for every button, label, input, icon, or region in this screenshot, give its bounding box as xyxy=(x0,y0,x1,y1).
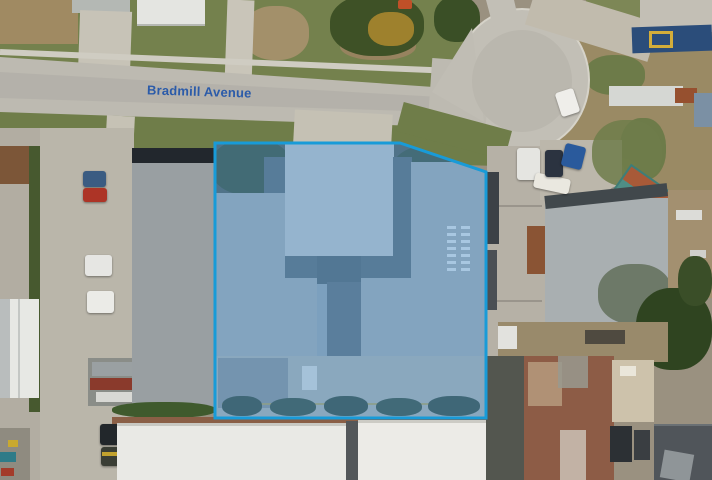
blue-structure xyxy=(694,93,712,127)
roof-central-strip xyxy=(327,282,361,360)
landscape-bush xyxy=(222,396,262,416)
roof-valley xyxy=(264,157,285,195)
driveway xyxy=(225,0,255,84)
tree-cluster xyxy=(678,256,712,306)
yellow-junk xyxy=(8,440,18,447)
crossover-driveway xyxy=(293,109,393,147)
hedge-row xyxy=(112,402,216,418)
white-speck xyxy=(676,210,702,220)
yellow-marking xyxy=(102,452,117,456)
white-car xyxy=(85,255,112,276)
landscape-bush xyxy=(428,396,480,416)
white-container xyxy=(302,366,317,390)
white-trailer xyxy=(498,326,517,349)
rusty-warehouse-light-band xyxy=(560,430,586,480)
subject-roof-lower xyxy=(283,278,317,358)
skylight-vents xyxy=(447,226,456,274)
steel-sheet-stack xyxy=(609,86,683,106)
roof-funnel xyxy=(317,256,361,284)
rusty-racks xyxy=(0,146,30,184)
steel-racks xyxy=(486,250,497,310)
yellow-frame-box xyxy=(649,31,673,48)
timber-stack xyxy=(527,226,545,274)
rusty-warehouse-tan-patch xyxy=(528,362,562,406)
white-roof-building xyxy=(137,0,205,26)
white-warehouse xyxy=(358,420,486,480)
roof-valley xyxy=(393,157,412,279)
dark-asphalt xyxy=(486,356,528,480)
white-trailer xyxy=(96,392,136,402)
landscape-bush xyxy=(270,398,316,416)
white-car xyxy=(87,291,114,313)
dirt-top-left xyxy=(0,0,78,44)
subject-roof-wing xyxy=(215,193,285,358)
autumn-tree xyxy=(368,12,414,46)
red-car xyxy=(83,188,107,202)
warehouse-left-roof xyxy=(132,148,216,414)
dark-van xyxy=(610,426,632,462)
dark-van xyxy=(634,430,650,460)
warehouse-gap xyxy=(346,421,358,480)
skylight-vents xyxy=(461,226,470,274)
landscape-bush xyxy=(376,398,422,416)
red-junk xyxy=(1,468,14,476)
landscape-bush xyxy=(324,396,368,416)
rusty-warehouse-grey-patch xyxy=(558,356,588,388)
white-warehouse xyxy=(117,423,346,480)
grey-wedge xyxy=(660,450,694,480)
warehouse-left-shadow-edge xyxy=(132,148,216,163)
red-object xyxy=(398,0,412,9)
subject-roof-upper-deck xyxy=(285,143,394,258)
gable-shadow-edge xyxy=(0,299,10,398)
blue-car xyxy=(83,171,106,187)
junk-bits xyxy=(585,330,625,344)
white-mark xyxy=(620,366,636,376)
teal-junk xyxy=(0,452,16,462)
aerial-photo: Bradmill Avenue xyxy=(0,0,712,480)
yard-marking xyxy=(492,300,542,302)
red-trailer xyxy=(90,378,136,390)
gable-ridge xyxy=(18,299,20,398)
steel-racks xyxy=(486,172,499,244)
yard-marking xyxy=(492,205,542,207)
grey-truck xyxy=(92,362,134,376)
subject-roof-lower xyxy=(360,278,411,358)
cul-de-sac-shade xyxy=(472,30,572,132)
